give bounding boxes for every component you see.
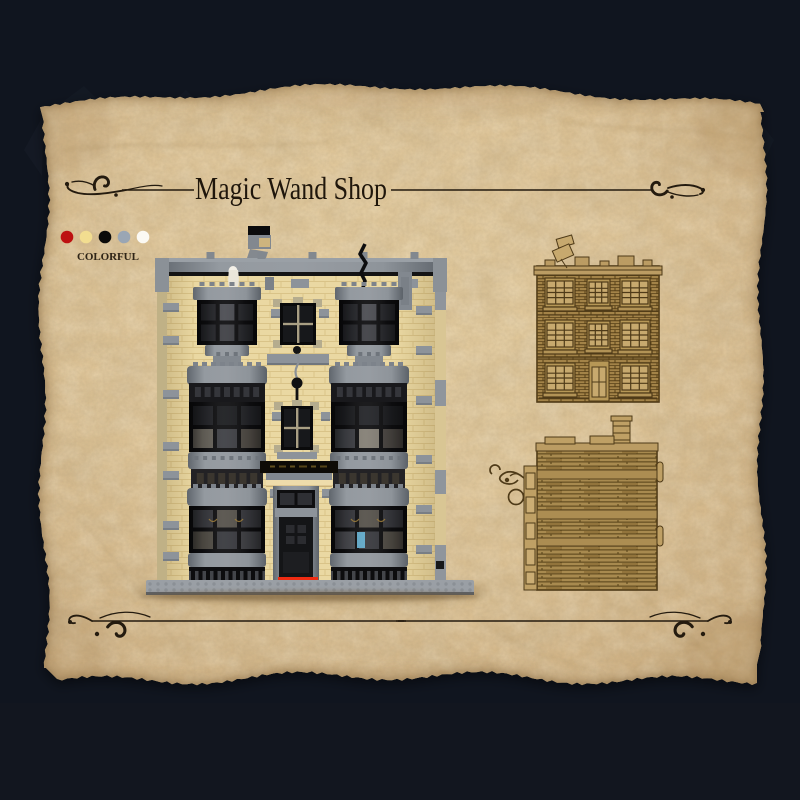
svg-text:Magic Wand Shop: Magic Wand Shop bbox=[195, 170, 387, 206]
svg-text:COLORFUL: COLORFUL bbox=[77, 251, 140, 263]
